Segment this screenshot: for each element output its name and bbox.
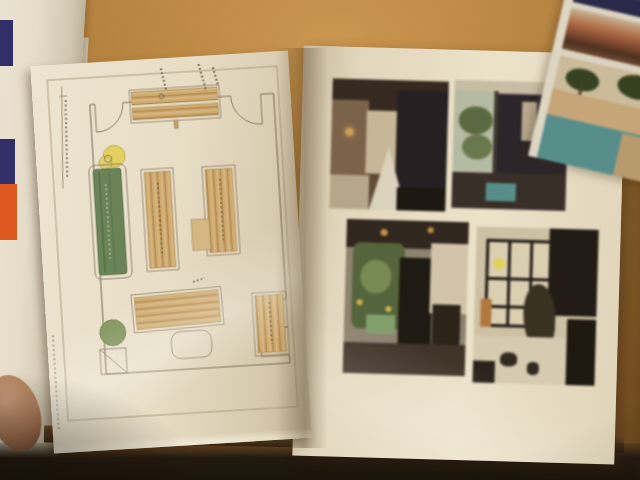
photo4-glass-wall [484,239,557,328]
handwritten-note-top-2 [199,64,207,92]
photo3-dark-counter [397,257,432,347]
photo4-plant-silhouette [522,284,556,350]
door-arc-top-left [95,103,125,133]
photo1-cream-wall [365,111,408,175]
photo1-lamp-glow [345,128,353,136]
photo3-yellow-fruit-2 [386,306,392,312]
envelope-navy-patch [0,139,15,185]
photo3-yellow-fruit-1 [357,299,363,305]
furniture-right-shelf [188,165,240,257]
floor-plan-drawing [33,53,308,448]
photo3-ceiling-band [346,219,469,250]
left-page [30,50,311,453]
photo2-window-frame [492,91,499,191]
room-outline [90,93,290,374]
furniture-yellow-stove [98,145,126,170]
photo2-teal-table [486,183,516,202]
photo3-greenery-light [360,259,393,294]
cabinet-label [269,302,272,344]
photo3-lamp-dot-2 [427,227,433,233]
door-arc-top-right [231,94,263,126]
photo4-grid-v1 [506,240,511,327]
photo1-ceiling-band [332,78,449,112]
plan-sheet-border [47,66,297,420]
photo4-yellow-sticker [494,258,505,269]
handwritten-note-top-3 [213,67,218,85]
photo4-grid-v2 [528,240,533,327]
photo4-dark-left-floor [472,361,495,383]
photo3-green-table [366,315,396,334]
photo3-floor [343,342,466,376]
furniture-bottom-table [130,277,224,333]
corner-column [100,348,127,375]
photo1-left-wall [330,99,369,186]
handwritten-note-top-1 [161,68,166,90]
bench-label [106,184,111,259]
envelope-orange-patch [0,184,17,240]
photo4-grid-h1 [485,277,556,282]
furniture-top-counter [129,85,221,131]
table-note [193,278,205,282]
photo4-dark-mass [548,229,599,318]
furniture-center-shelf [141,168,179,272]
photo1-light-floor [329,175,369,210]
photo2-window-column [452,90,498,191]
photo-interior-bottom-right [472,226,598,385]
left-margin-annotation [57,86,73,188]
envelope-navy-patch-top [0,20,13,66]
photo1-floor-shadow [396,187,445,212]
handwritten-note-bottom-left [53,335,59,429]
photo2-floor [451,172,566,211]
photo2-plant-lower [462,134,492,160]
furniture-rounded-rug [171,330,213,359]
photo1-dark-furniture [394,91,448,212]
photo3-greenery [351,242,405,330]
photo4-floor-mark-1 [500,352,517,367]
gutter-shadow [276,48,328,448]
photo-interior-bottom-left [343,219,469,376]
photo4-dark-right [565,320,596,386]
photo-scene [0,0,640,480]
photo3-white-wall [430,243,469,315]
shelf-extension [191,219,211,251]
photo4-grid-h2 [484,305,555,310]
photo4-warm-object [480,298,492,326]
furniture-green-round-table [99,319,127,347]
photo3-lamp-dot-1 [381,229,388,236]
photo4-floor-mark-2 [526,362,539,375]
photo3-chair [431,304,460,345]
photo-interior-top-left [329,78,449,211]
right-shelf-label [220,179,224,242]
center-shelf-label [158,183,163,257]
photo4-floor [472,336,595,386]
furniture-green-bench [89,164,133,280]
photo2-plant-upper [458,106,493,135]
photo1-white-triangle-shade [369,147,408,210]
